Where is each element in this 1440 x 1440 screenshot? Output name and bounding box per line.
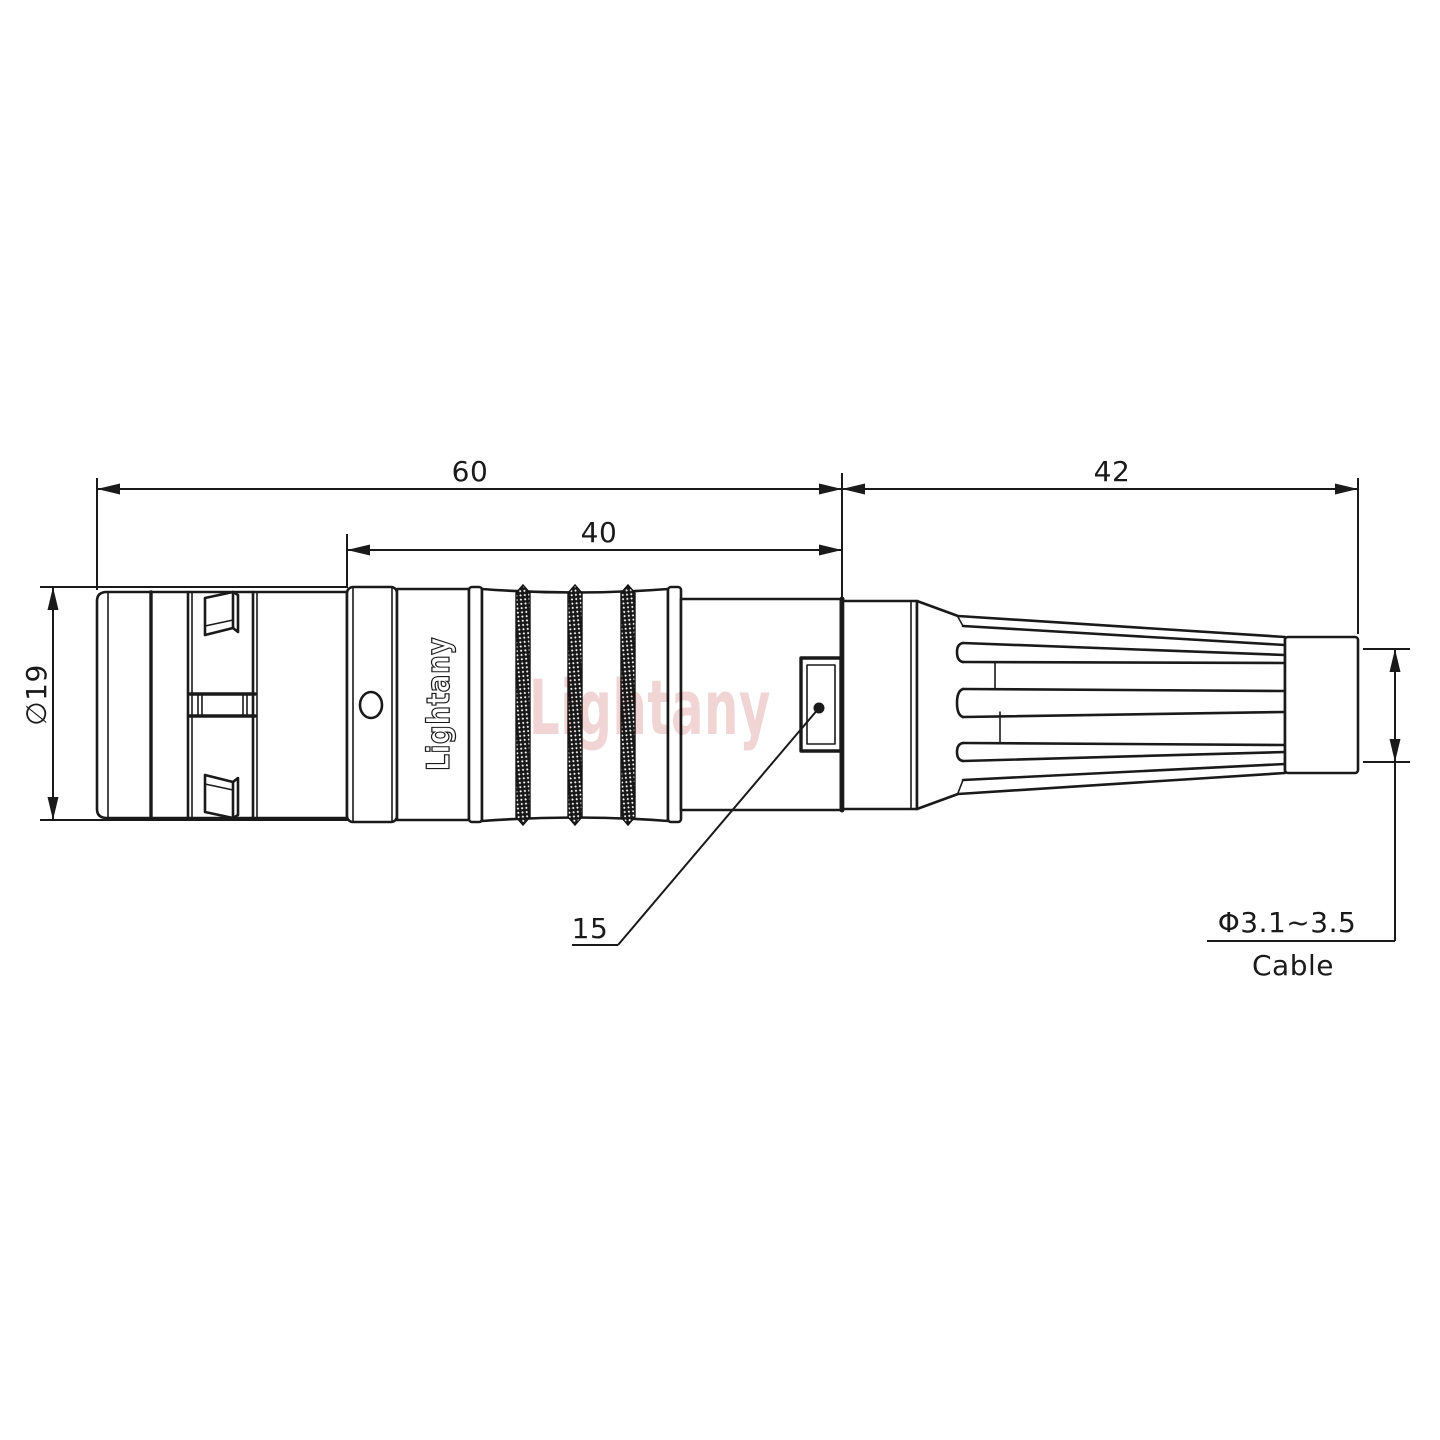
coupling-collar — [347, 587, 397, 822]
bayonet-key-top — [205, 592, 238, 635]
dim-dia19-label: ∅19 — [20, 664, 53, 726]
dim-40-label: 40 — [581, 516, 618, 549]
bayonet-key-bottom — [205, 775, 238, 818]
dim-overall-length: 60 — [97, 455, 842, 598]
engraving-text: Lightany — [421, 637, 457, 771]
collar-hole — [360, 692, 382, 718]
connector-dimension-drawing: Lightany Lightany 60 40 42 ∅19 — [0, 0, 1440, 1440]
technical-drawing-canvas: Lightany Lightany 60 40 42 ∅19 — [0, 0, 1440, 1440]
cable-diameter-label: Φ3.1~3.5 — [1218, 906, 1357, 939]
cable-label: Cable — [1252, 949, 1334, 982]
dim-42-label: 42 — [1094, 455, 1131, 488]
strain-relief-boot — [843, 601, 1358, 809]
dim-mid-length: 40 — [347, 516, 842, 586]
knurl-band-1 — [516, 585, 530, 825]
dim-60-label: 60 — [452, 455, 489, 488]
cable-tip — [1285, 637, 1358, 773]
boot-fins — [917, 601, 1285, 809]
dim-15-label: 15 — [572, 912, 609, 945]
watermark-text: Lightany — [529, 663, 771, 752]
